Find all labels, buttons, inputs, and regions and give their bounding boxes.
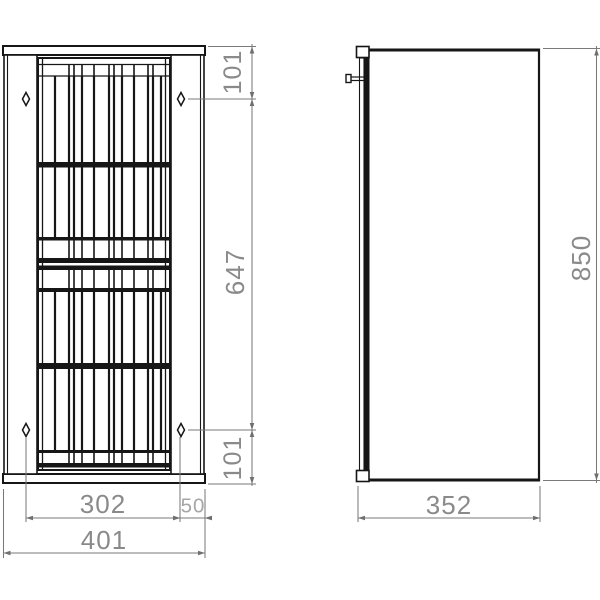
dim-front-overall-width: 401 [81,525,127,555]
dim-front-hole-span-vertical: 647 [220,249,250,295]
dim-front-top-offset: 101 [219,50,247,95]
dim-side-depth: 352 [426,490,472,520]
dim-front-hole-span-horizontal: 302 [80,489,126,519]
front-left-wall [4,55,37,474]
front-bottom-panel [3,474,205,483]
front-top-panel [3,46,205,55]
dimension-arrow [250,47,255,54]
dimension-arrow [4,551,11,556]
dimension-arrow [250,92,255,99]
dimension-arrow [198,551,205,556]
dim-front-bottom-offset: 101 [219,436,247,481]
front-door-frame [38,58,170,470]
dimension-arrow [205,516,212,521]
dimension-arrow [594,49,599,56]
cabinet-drawing: 101 647 101 302 50 401 352 850 [0,0,600,600]
side-bottom-cap [357,471,370,482]
front-right-wall [171,55,204,474]
dimension-arrow [250,477,255,484]
dimension-arrow [594,474,599,481]
side-front-strip [360,58,365,471]
dimension-arrow [250,423,255,430]
dimension-arrow [533,516,540,521]
side-top-cap [357,47,370,58]
dimension-arrow [358,516,365,521]
dim-front-hole-to-edge: 50 [181,495,206,518]
front-view [3,46,205,483]
technical-drawing-page: 101 647 101 302 50 401 352 850 [0,0,600,600]
side-front-bar [364,57,370,472]
dimension-arrow [250,99,255,106]
side-view [346,47,540,482]
dim-side-height: 850 [566,235,596,281]
dimension-arrow [173,516,180,521]
dimension-arrow [26,516,33,521]
dimension-arrow [250,430,255,437]
